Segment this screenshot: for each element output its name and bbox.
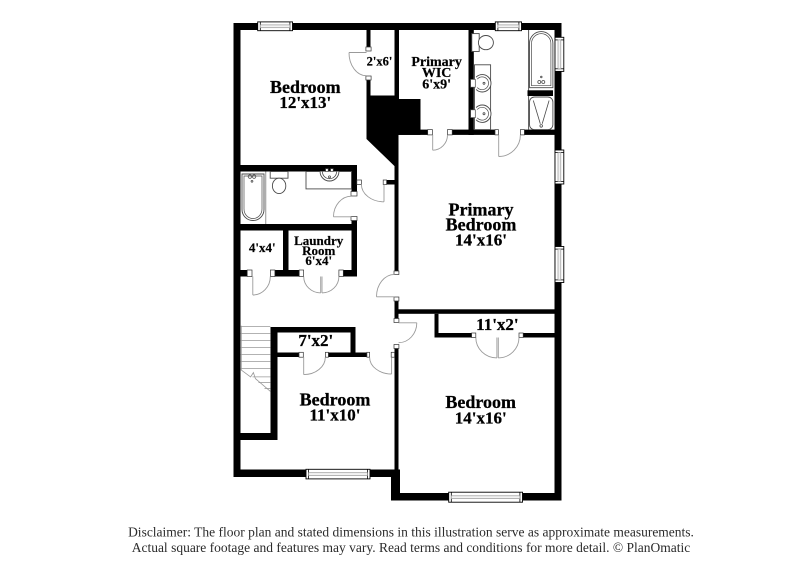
svg-text:6'x4': 6'x4' (305, 253, 332, 268)
svg-text:12'x13': 12'x13' (279, 93, 331, 112)
svg-text:7'x2': 7'x2' (298, 331, 333, 350)
svg-text:2'x6': 2'x6' (367, 55, 393, 69)
svg-text:6'x9': 6'x9' (422, 78, 451, 93)
svg-text:11'x2': 11'x2' (476, 315, 519, 334)
svg-text:Actual square footage and feat: Actual square footage and features may v… (132, 540, 691, 555)
svg-text:14'x16': 14'x16' (455, 409, 507, 428)
svg-text:14'x16': 14'x16' (455, 231, 507, 250)
svg-text:4'x4': 4'x4' (249, 240, 276, 255)
svg-text:Disclaimer: The floor plan and: Disclaimer: The floor plan and stated di… (128, 525, 694, 540)
svg-text:11'x10': 11'x10' (309, 406, 360, 425)
